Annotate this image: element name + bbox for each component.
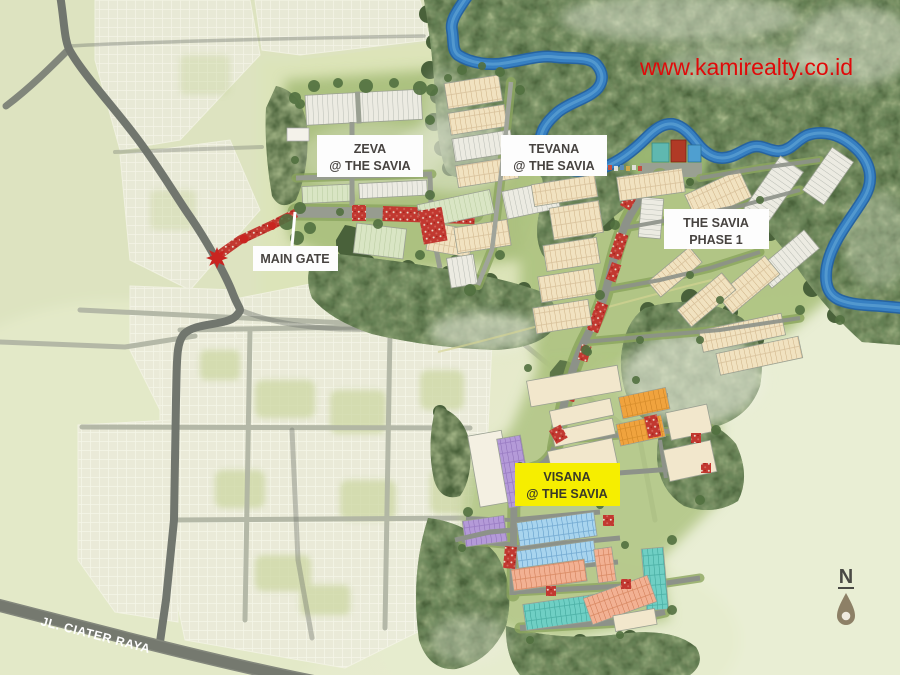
svg-text:www.kamirealty.co.id: www.kamirealty.co.id — [639, 54, 853, 80]
svg-text:ZEVA: ZEVA — [354, 142, 386, 156]
svg-text:@ THE SAVIA: @ THE SAVIA — [526, 487, 607, 501]
svg-text:PHASE 1: PHASE 1 — [689, 233, 743, 247]
svg-text:N: N — [839, 566, 853, 588]
svg-text:TEVANA: TEVANA — [529, 142, 579, 156]
svg-text:@ THE SAVIA: @ THE SAVIA — [329, 159, 410, 173]
svg-text:VISANA: VISANA — [543, 470, 590, 484]
svg-text:@ THE SAVIA: @ THE SAVIA — [513, 159, 594, 173]
svg-text:THE SAVIA: THE SAVIA — [683, 216, 749, 230]
svg-text:MAIN GATE: MAIN GATE — [260, 252, 329, 266]
